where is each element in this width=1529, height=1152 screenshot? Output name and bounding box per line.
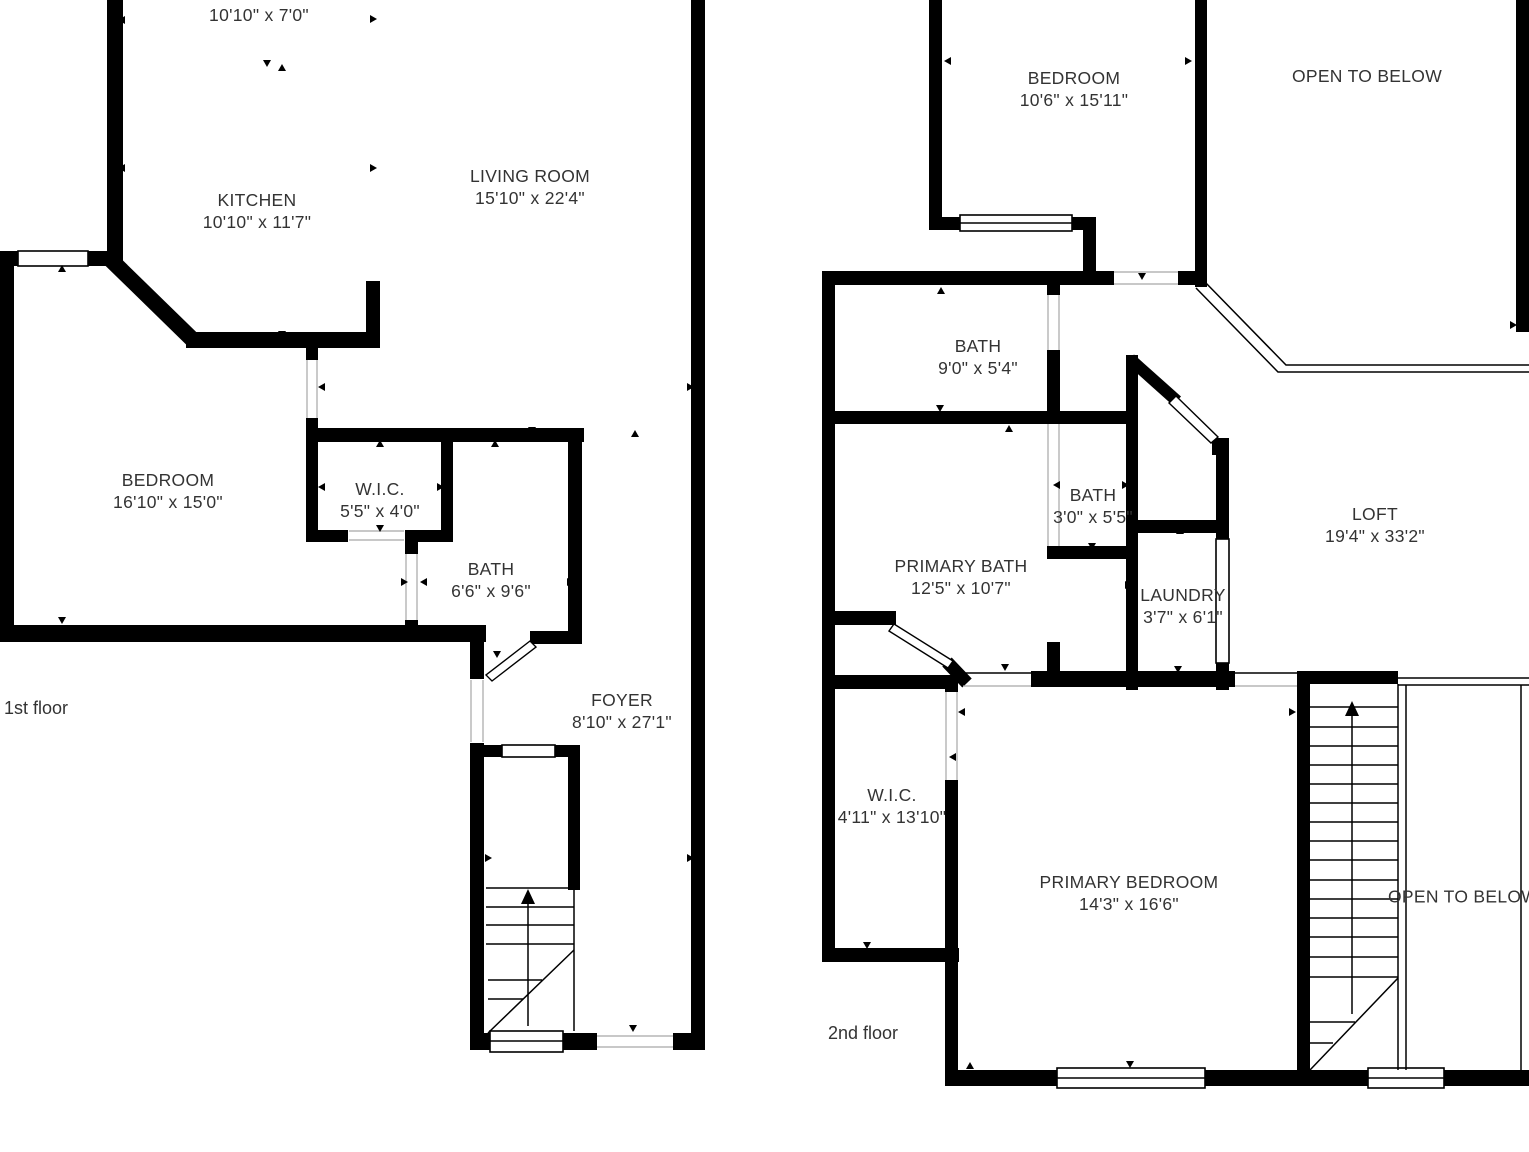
room-label-bedroom-1f: BEDROOM 16'10" x 15'0" (113, 469, 223, 513)
first-floor-stairs (486, 888, 574, 1033)
second-floor-caption: 2nd floor (828, 1023, 898, 1044)
floor-plan-drawing (0, 0, 1529, 1152)
first-floor-caption: 1st floor (4, 698, 68, 719)
room-label-primary-bath: PRIMARY BATH 12'5" x 10'7" (895, 555, 1028, 599)
room-label-open-to-below-bottom: OPEN TO BELOW (1388, 887, 1529, 908)
second-floor-stairs (1310, 684, 1398, 1070)
room-label-laundry: LAUNDRY 3'7" x 6'1" (1140, 584, 1225, 628)
room-label-bath-1f: BATH 6'6" x 9'6" (451, 558, 531, 602)
room-label-wic-2f: W.I.C. 4'11" x 13'10" (838, 784, 947, 828)
room-label-open-to-below-top: OPEN TO BELOW (1292, 65, 1442, 87)
room-label-primary-bedroom: PRIMARY BEDROOM 14'3" x 16'6" (1040, 871, 1219, 915)
first-floor-plan (0, 0, 705, 1052)
first-floor-stairs-up-arrow-icon (521, 889, 535, 904)
room-label-foyer: FOYER 8'10" x 27'1" (572, 689, 672, 733)
first-floor-walls (0, 0, 705, 1050)
second-floor-window-lines (960, 223, 1444, 1078)
room-label-kitchen: KITCHEN 10'10" x 11'7" (203, 189, 312, 233)
room-label-bath-small: BATH 3'0" x 5'5" (1053, 484, 1133, 528)
room-label-loft: LOFT 19'4" x 33'2" (1325, 503, 1425, 547)
angled-window (1169, 396, 1218, 443)
bay-window (889, 624, 953, 668)
room-label-bath-2f: BATH 9'0" x 5'4" (938, 335, 1018, 379)
room-label-upper-room: 10'10" x 7'0" (209, 4, 309, 26)
second-floor-stairs-up-arrow-icon (1345, 701, 1359, 716)
floor-plan-page: 10'10" x 7'0" KITCHEN 10'10" x 11'7" LIV… (0, 0, 1529, 1152)
room-label-wic-1f: W.I.C. 5'5" x 4'0" (340, 478, 420, 522)
door-leaf (486, 641, 536, 681)
room-label-living-room: LIVING ROOM 15'10" x 22'4" (470, 165, 590, 209)
room-label-bedroom-2f: BEDROOM 10'6" x 15'11" (1020, 67, 1129, 111)
